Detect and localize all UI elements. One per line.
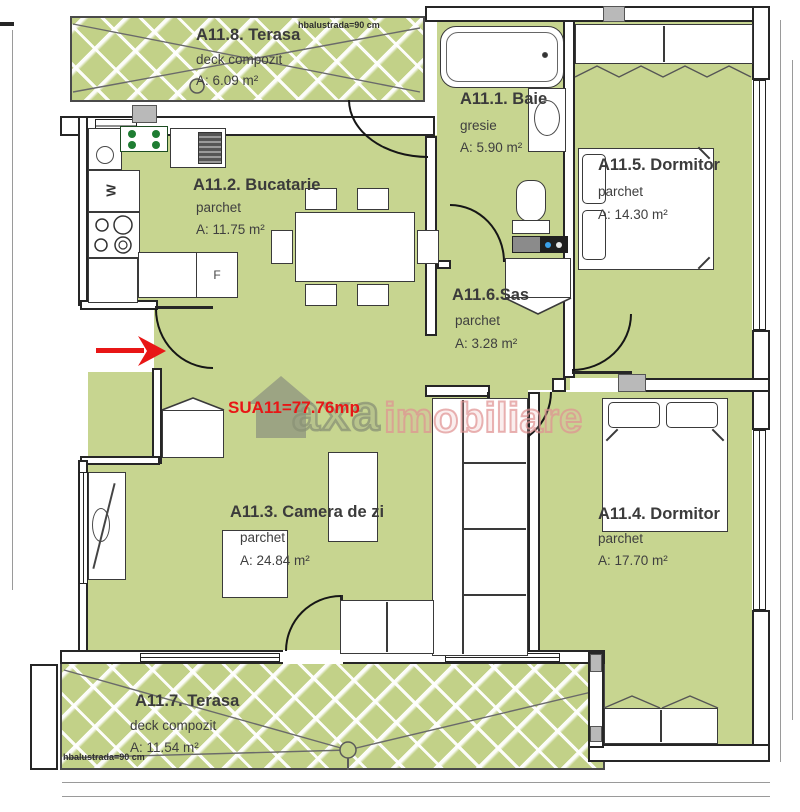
entrance-arrow xyxy=(96,348,144,353)
window-bedroom5 xyxy=(753,80,766,330)
bathtub-faucet xyxy=(542,52,548,58)
wall xyxy=(152,368,162,464)
sofa-line xyxy=(464,594,526,596)
window-bedroom4 xyxy=(753,430,766,610)
dimension-tick xyxy=(0,22,14,26)
armchair xyxy=(328,452,378,542)
door-leaf-bedroom5 xyxy=(572,371,632,374)
cooktop-burners xyxy=(120,126,168,152)
window-living-bottom-left xyxy=(140,653,280,662)
room-name-bucatarie: A11.2. Bucatarie xyxy=(193,176,321,195)
wall xyxy=(78,116,88,306)
room-area-dormitor5: A: 14.30 m² xyxy=(598,207,668,222)
wardrobe-divider xyxy=(660,710,662,742)
wall xyxy=(437,260,451,269)
sofa-line xyxy=(386,602,388,652)
entrance-arrow-head xyxy=(138,336,166,366)
room-name-terasa8: A11.8. Terasa xyxy=(196,26,300,45)
stove-burners xyxy=(88,212,140,258)
wall xyxy=(30,664,58,770)
wardrobe-divider xyxy=(663,26,665,62)
wall xyxy=(425,6,770,22)
room-finish-camera: parchet xyxy=(240,530,285,545)
wall xyxy=(752,610,770,762)
column xyxy=(590,726,602,742)
dimension-line xyxy=(792,60,793,720)
floor-plan: W F xyxy=(0,0,800,812)
pillow xyxy=(608,402,660,428)
watermark-imobiliare: imobiliare xyxy=(384,394,582,442)
dimension-line xyxy=(780,20,781,762)
sofa-line xyxy=(464,528,526,530)
bathtub-inner xyxy=(446,32,558,82)
tv-stand xyxy=(92,508,110,542)
column xyxy=(590,654,602,672)
room-finish-dormitor5: parchet xyxy=(598,184,643,199)
room-finish-sas: parchet xyxy=(455,313,500,328)
balustrade-label-top: hbalustrada=90 cm xyxy=(298,20,380,30)
door-opening-terrace xyxy=(283,650,343,664)
wall xyxy=(588,744,770,762)
chair xyxy=(305,284,337,306)
chair xyxy=(357,284,389,306)
dining-table xyxy=(295,212,415,282)
room-name-baie: A11.1. Baie xyxy=(460,90,547,109)
sofa-line xyxy=(464,462,526,464)
room-finish-terasa8: deck compozit xyxy=(196,52,282,67)
toilet-tank xyxy=(512,220,550,234)
room-area-baie: A: 5.90 m² xyxy=(460,140,522,155)
window-living-left xyxy=(79,472,88,584)
total-area-label: SUA11=77.76mp xyxy=(228,398,360,418)
room-name-camera: A11.3. Camera de zi xyxy=(230,503,384,522)
room-area-terasa8: A: 6.09 m² xyxy=(196,73,258,88)
shoe-cabinet xyxy=(162,410,224,458)
fridge: F xyxy=(196,252,238,298)
toilet-bowl xyxy=(516,180,546,222)
kitchen-base-cabinet xyxy=(88,258,138,303)
room-name-dormitor5: A11.5. Dormitor xyxy=(598,156,720,175)
room-name-dormitor4: A11.4. Dormitor xyxy=(598,505,720,524)
dimension-line xyxy=(62,796,770,797)
room-finish-dormitor4: parchet xyxy=(598,531,643,546)
column xyxy=(132,105,157,123)
column xyxy=(603,6,625,22)
wall xyxy=(752,6,770,80)
balustrade-label-bottom: hbalustrada=90 cm xyxy=(63,752,145,762)
room-name-terasa7: A11.7. Terasa xyxy=(135,692,239,711)
chair xyxy=(271,230,293,264)
dimension-line xyxy=(12,30,13,590)
washer-label: W xyxy=(104,184,119,196)
room-area-bucatarie: A: 11.75 m² xyxy=(196,222,265,237)
wardrobe-rail-bedroom5 xyxy=(575,64,753,80)
room-name-sas: A11.6.Sas xyxy=(452,286,529,305)
kitchen-pipe xyxy=(96,146,114,164)
room-finish-bucatarie: parchet xyxy=(196,200,241,215)
chair xyxy=(357,188,389,210)
dimension-line xyxy=(62,782,770,783)
washing-machine: W xyxy=(88,170,140,212)
room-finish-terasa7: deck compozit xyxy=(130,718,216,733)
fridge-label: F xyxy=(213,268,220,282)
wall xyxy=(80,456,160,465)
wall xyxy=(552,378,566,392)
chair xyxy=(417,230,439,264)
room-area-dormitor4: A: 17.70 m² xyxy=(598,553,668,568)
column xyxy=(618,374,646,392)
room-area-sas: A: 3.28 m² xyxy=(455,336,517,351)
room-area-camera: A: 24.84 m² xyxy=(240,553,310,568)
pillow xyxy=(666,402,718,428)
room-finish-baie: gresie xyxy=(460,118,497,133)
sink-drainer xyxy=(198,132,222,164)
washer-dots xyxy=(540,236,568,253)
wall xyxy=(635,378,770,392)
